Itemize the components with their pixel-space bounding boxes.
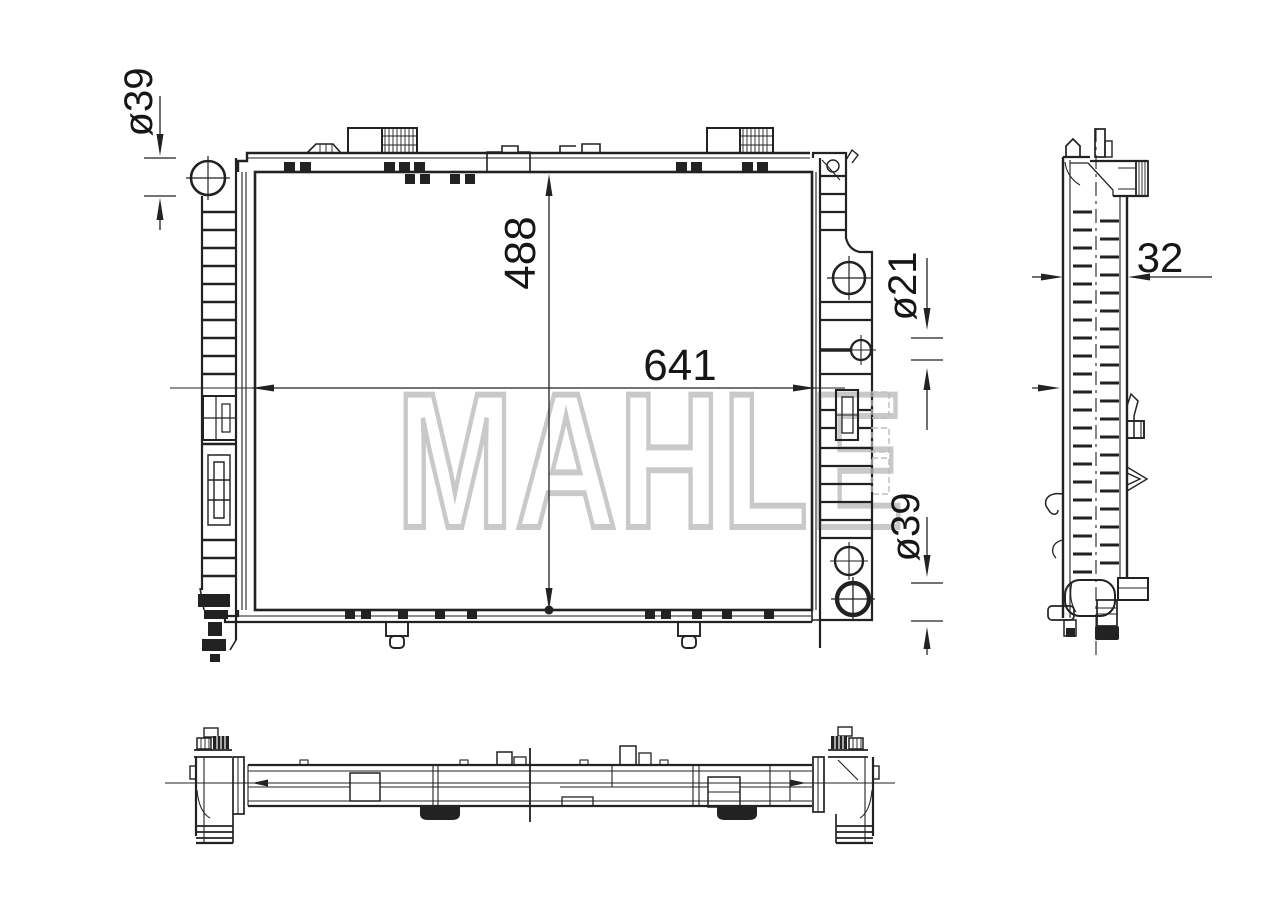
- side-tab: [1127, 467, 1147, 491]
- top-bracket: [307, 144, 341, 153]
- dim-label-top-left-port: ø39: [117, 68, 161, 137]
- bottom-strip: [248, 746, 812, 822]
- top-clip: [560, 144, 600, 153]
- radiator-drawing: MAHLE: [0, 0, 1280, 901]
- top-header: [238, 128, 810, 184]
- filler-neck: [345, 128, 420, 153]
- dim-label-depth: 32: [1137, 234, 1184, 281]
- technical-drawing-page: MAHLE: [0, 0, 1280, 901]
- dim-depth: 32: [1032, 234, 1212, 281]
- dim-top-left-port: ø39: [117, 68, 176, 230]
- drain-stub: [678, 622, 700, 648]
- bottom-left-elbow: [190, 728, 244, 843]
- dim-label-core-width: 641: [643, 341, 716, 390]
- bottom-feet: [420, 806, 757, 820]
- dim-label-bottom-right-port: ø39: [884, 493, 928, 562]
- bottom-header: [225, 610, 820, 648]
- left-tank-bracket: [208, 455, 230, 525]
- dim-label-right-pipe: ø21: [881, 252, 925, 321]
- side-view: [1032, 128, 1148, 658]
- side-left-hook: [1046, 494, 1063, 515]
- side-center-pointer: [1032, 385, 1060, 392]
- left-tank: [186, 156, 242, 662]
- bottom-tabs: [345, 611, 774, 619]
- side-top-pipe: [1063, 129, 1148, 196]
- drain-stub: [386, 622, 408, 648]
- left-tank-ribs: [202, 212, 236, 576]
- top-hook: [846, 150, 858, 163]
- bottom-view: [165, 727, 895, 843]
- top-clip: [487, 146, 530, 172]
- dim-label-core-height: 488: [496, 216, 545, 289]
- side-hook: [1127, 394, 1138, 438]
- dim-bottom-right-port: ø39: [884, 493, 943, 655]
- filler-cap: [704, 128, 776, 153]
- bottom-right-elbow: [813, 727, 879, 843]
